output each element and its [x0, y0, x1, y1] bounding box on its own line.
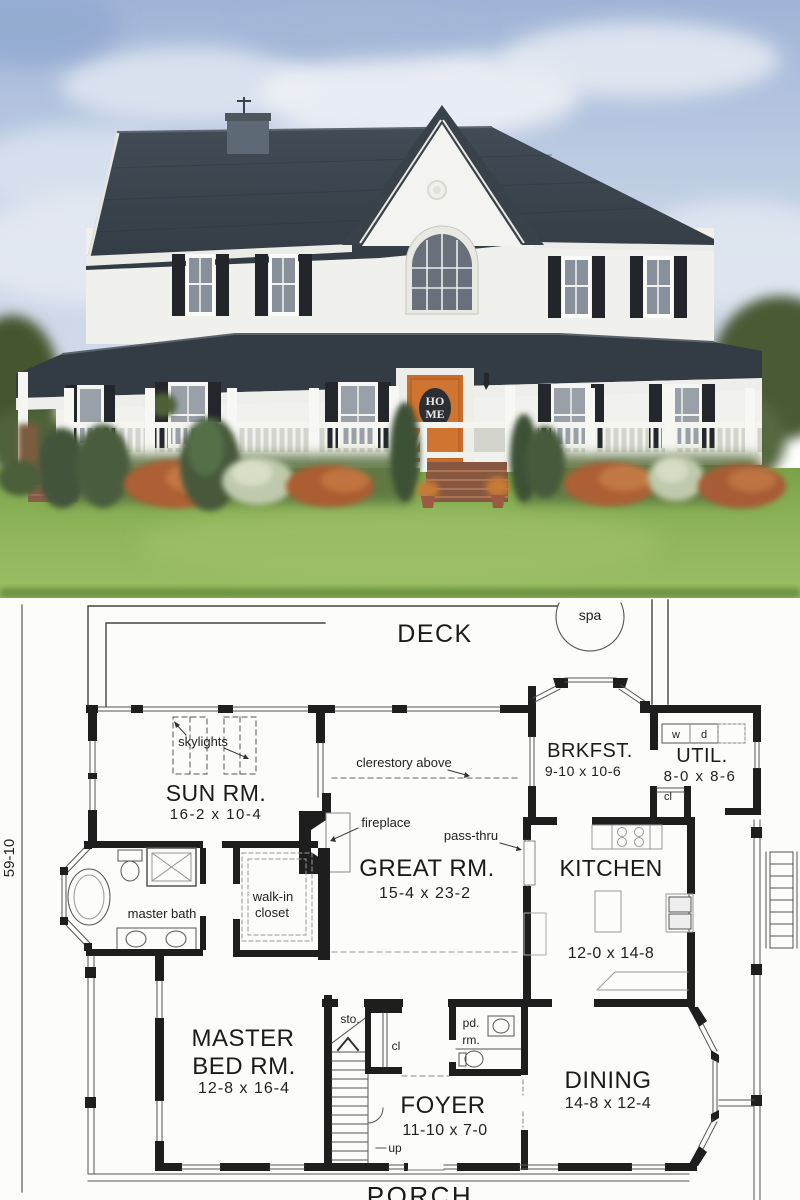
svg-text:59-10: 59-10 [1, 839, 18, 877]
svg-text:up: up [388, 1141, 402, 1155]
svg-text:cl: cl [392, 1039, 401, 1053]
svg-text:DECK: DECK [397, 620, 472, 648]
svg-text:closet: closet [255, 905, 289, 920]
svg-text:UTIL.: UTIL. [676, 745, 727, 767]
svg-text:walk-in: walk-in [252, 889, 293, 904]
svg-text:9-10 x 10-6: 9-10 x 10-6 [545, 763, 621, 779]
svg-text:master bath: master bath [128, 906, 197, 921]
svg-text:rm.: rm. [462, 1033, 479, 1047]
svg-text:12-0 x 14-8: 12-0 x 14-8 [568, 945, 654, 962]
svg-text:GREAT RM.: GREAT RM. [359, 855, 495, 882]
svg-text:fireplace: fireplace [361, 815, 410, 830]
svg-text:SUN RM.: SUN RM. [166, 780, 267, 806]
svg-text:BRKFST.: BRKFST. [547, 740, 633, 762]
svg-text:14-8 x 12-4: 14-8 x 12-4 [565, 1095, 651, 1112]
svg-text:cl: cl [664, 791, 672, 803]
svg-text:HO: HO [426, 394, 445, 408]
svg-text:d: d [701, 729, 707, 741]
svg-text:w: w [671, 729, 680, 741]
svg-text:pd.: pd. [463, 1016, 480, 1030]
svg-text:BED RM.: BED RM. [192, 1053, 296, 1080]
svg-text:DINING: DINING [565, 1067, 652, 1094]
svg-text:spa: spa [579, 607, 602, 623]
svg-text:FOYER: FOYER [400, 1092, 485, 1119]
svg-text:KITCHEN: KITCHEN [559, 855, 662, 881]
svg-text:8-0 x 8-6: 8-0 x 8-6 [664, 768, 737, 785]
svg-text:12-8 x 16-4: 12-8 x 16-4 [198, 1080, 290, 1097]
svg-text:clerestory above: clerestory above [356, 755, 451, 770]
svg-text:PORCH: PORCH [367, 1181, 473, 1200]
svg-text:MASTER: MASTER [191, 1025, 294, 1052]
svg-text:skylights: skylights [178, 734, 228, 749]
svg-text:pass-thru: pass-thru [444, 828, 498, 843]
svg-text:16-2 x 10-4: 16-2 x 10-4 [170, 806, 262, 823]
svg-text:11-10 x 7-0: 11-10 x 7-0 [402, 1122, 487, 1139]
svg-text:15-4 x 23-2: 15-4 x 23-2 [379, 885, 471, 902]
svg-text:ME: ME [425, 407, 444, 421]
